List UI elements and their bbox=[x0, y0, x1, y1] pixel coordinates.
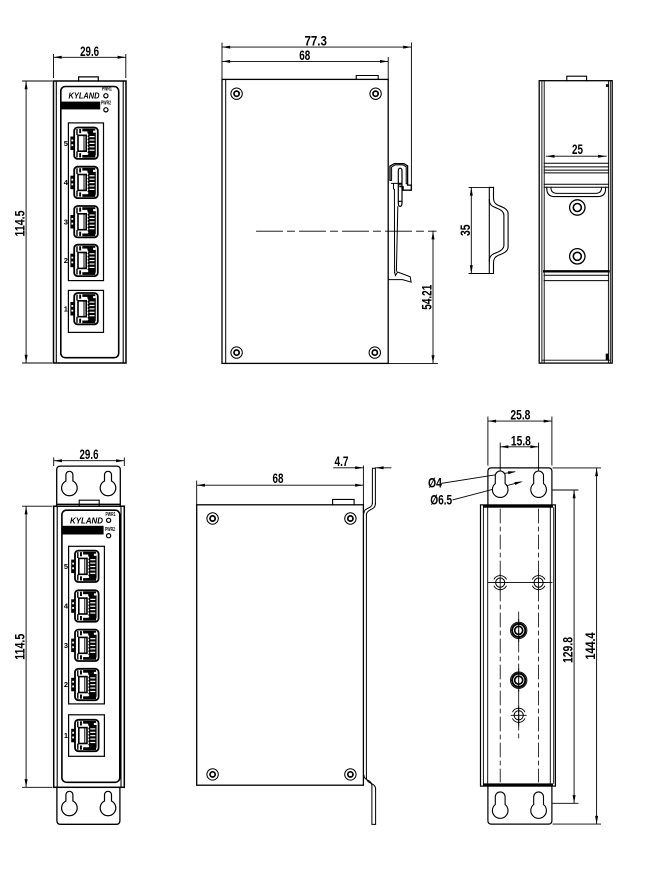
svg-text:114.5: 114.5 bbox=[13, 210, 28, 236]
svg-text:15.8: 15.8 bbox=[511, 433, 531, 448]
svg-text:5: 5 bbox=[64, 139, 68, 148]
svg-text:25: 25 bbox=[572, 142, 583, 157]
svg-text:Ø6.5: Ø6.5 bbox=[430, 492, 452, 507]
svg-text:PWR1: PWR1 bbox=[106, 512, 116, 518]
svg-text:68: 68 bbox=[273, 471, 284, 486]
svg-text:1: 1 bbox=[64, 304, 68, 313]
svg-text:5: 5 bbox=[64, 562, 68, 571]
svg-text:KYLAND: KYLAND bbox=[69, 92, 100, 101]
svg-text:1: 1 bbox=[64, 731, 68, 740]
svg-text:KYLAND: KYLAND bbox=[70, 516, 103, 525]
svg-text:Ø4: Ø4 bbox=[428, 476, 442, 491]
svg-text:29.6: 29.6 bbox=[80, 44, 99, 59]
svg-text:2: 2 bbox=[64, 256, 68, 265]
svg-text:29.6: 29.6 bbox=[80, 447, 99, 462]
svg-text:68: 68 bbox=[299, 48, 310, 63]
svg-text:4.7: 4.7 bbox=[335, 454, 349, 469]
svg-text:77.3: 77.3 bbox=[304, 34, 327, 49]
svg-text:2: 2 bbox=[64, 680, 68, 689]
svg-text:114.5: 114.5 bbox=[13, 633, 28, 659]
svg-text:25.8: 25.8 bbox=[510, 408, 530, 423]
svg-text:54.21: 54.21 bbox=[420, 284, 435, 309]
svg-text:144.4: 144.4 bbox=[583, 632, 598, 659]
svg-text:PWR2: PWR2 bbox=[105, 527, 115, 533]
svg-text:129.8: 129.8 bbox=[561, 637, 576, 663]
svg-text:3: 3 bbox=[64, 217, 68, 226]
svg-text:3: 3 bbox=[64, 641, 68, 650]
svg-text:35: 35 bbox=[458, 224, 473, 236]
svg-text:PWR1: PWR1 bbox=[102, 87, 112, 93]
svg-text:PWR2: PWR2 bbox=[101, 101, 111, 107]
